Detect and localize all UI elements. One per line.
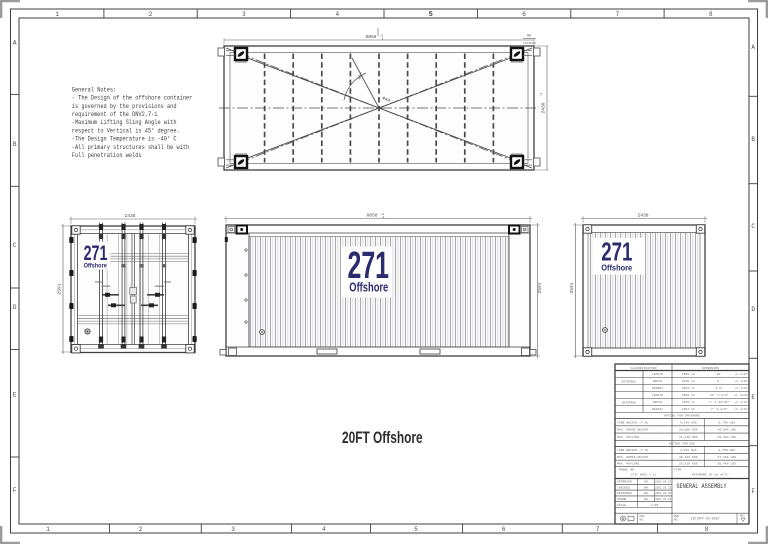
svg-text:3: 3 [242, 11, 246, 18]
svg-text:2438: 2438 [637, 213, 648, 219]
svg-text:8: 8 [709, 11, 713, 18]
svg-text:C: C [751, 223, 755, 230]
svg-text:F: F [13, 487, 17, 494]
svg-text:2591 ±2: 2591 ±2 [682, 386, 695, 390]
svg-text:+0 -1/16": +0 -1/16" [735, 380, 749, 383]
svg-text:DIMENSION: DIMENSION [702, 366, 719, 370]
svg-text:15,130 KGS: 15,130 KGS [679, 435, 698, 439]
svg-text:APPROVED: APPROVED [617, 480, 632, 484]
svg-text:2438: 2438 [124, 213, 135, 219]
svg-text:WIDTH: WIDTH [653, 400, 662, 404]
svg-text:8': 8' [717, 379, 721, 383]
svg-text:271: 271 [84, 241, 108, 264]
svg-text:C: C [13, 242, 17, 249]
svg-text:1/35: 1/35 [651, 503, 659, 507]
svg-text:2438: 2438 [541, 102, 547, 113]
svg-text:60: 60 [527, 35, 531, 39]
svg-text:2: 2 [139, 526, 143, 533]
svg-text:TYPE: TYPE [674, 468, 682, 472]
svg-text:2021.03.25: 2021.03.25 [655, 498, 672, 501]
svg-text:- The Design of the offshore c: - The Design of the offshore container [72, 94, 193, 102]
svg-text:LENGTH: LENGTH [652, 372, 663, 376]
svg-text:7: 7 [616, 11, 620, 18]
svg-text:Full penetration welds: Full penetration welds [72, 151, 142, 159]
svg-text:Offshore: Offshore [349, 281, 388, 295]
svg-text:D: D [13, 304, 17, 311]
svg-text:(CSC DNV2.7-1): (CSC DNV2.7-1) [631, 473, 657, 477]
svg-text:TARE WEIGHT (T.W): TARE WEIGHT (T.W) [617, 420, 649, 424]
svg-text:+0 -3/16": +0 -3/16" [735, 373, 749, 376]
svg-text:respect to Vertical is 45° deg: respect to Vertical is 45° degree. [72, 127, 180, 135]
svg-text:HEIGHT: HEIGHT [652, 407, 663, 411]
svg-text:58,464 LBS: 58,464 LBS [717, 462, 736, 466]
svg-text:WH: WH [644, 480, 648, 484]
svg-text:CHECKED: CHECKED [617, 485, 630, 489]
svg-text:is governed by the provisions: is governed by the provisions and [72, 102, 177, 110]
svg-text:6: 6 [502, 526, 506, 533]
svg-text:1: 1 [55, 11, 59, 18]
svg-text:7' 6-3/8": 7' 6-3/8" [711, 407, 728, 411]
svg-text:E: E [751, 394, 755, 401]
svg-text:CLASSIFICATION: CLASSIFICATION [631, 366, 657, 370]
svg-text:WH: WH [644, 497, 648, 501]
svg-text:8'6": 8'6" [716, 386, 724, 390]
svg-text:RATING FOR USE: RATING FOR USE [669, 442, 695, 446]
svg-text:8: 8 [705, 526, 709, 533]
svg-text:2021.03.25: 2021.03.25 [655, 492, 672, 495]
svg-text:-The Design Temperature is -40: -The Design Temperature is -40° C [72, 135, 177, 143]
svg-text:6058: 6058 [366, 213, 377, 219]
svg-text:EXTERNAL: EXTERNAL [622, 380, 637, 384]
svg-text:3: 3 [231, 526, 235, 533]
svg-text:30,480 KGS: 30,480 KGS [679, 455, 698, 459]
svg-text:2591: 2591 [537, 282, 543, 293]
svg-text:7' 7-23/32": 7' 7-23/32" [709, 400, 730, 404]
svg-text:20': 20' [716, 372, 722, 376]
svg-text:+0 -1/16": +0 -1/16" [735, 408, 749, 411]
svg-text:5: 5 [429, 11, 433, 19]
svg-text:2591: 2591 [57, 283, 63, 294]
svg-text:8,750 LBS: 8,750 LBS [718, 420, 735, 424]
svg-text:NO.: NO. [674, 519, 679, 522]
svg-text:25,610 KGS: 25,610 KGS [679, 462, 698, 466]
svg-text:7: 7 [596, 526, 600, 533]
svg-text:4: 4 [322, 526, 326, 533]
svg-text:+0 -13/64": +0 -13/64" [734, 394, 750, 397]
svg-text:General Notes:: General Notes: [72, 86, 116, 94]
svg-text:20FT Offshore: 20FT Offshore [342, 429, 423, 448]
svg-text:F: F [751, 488, 755, 495]
svg-text:GENERAL ASSEMBLY: GENERAL ASSEMBLY [677, 483, 727, 491]
svg-text:44,094 LBS: 44,094 LBS [717, 428, 736, 432]
svg-text:67,196 LBS: 67,196 LBS [717, 455, 736, 459]
svg-text:33,360 LBS: 33,360 LBS [717, 435, 736, 439]
svg-text:requirement of the DNV2.7-1: requirement of the DNV2.7-1 [72, 110, 158, 118]
svg-text:A: A [751, 44, 755, 51]
svg-text:MAX. GROSS WEIGHT: MAX. GROSS WEIGHT [617, 428, 649, 432]
svg-text:MODEL NO: MODEL NO [619, 468, 634, 472]
svg-text:B: B [751, 136, 755, 143]
svg-text:2591: 2591 [569, 282, 575, 293]
svg-text:MAX. GROSS WEIGHT: MAX. GROSS WEIGHT [617, 455, 649, 459]
svg-text:DESIGNED: DESIGNED [617, 491, 632, 495]
svg-text:5: 5 [414, 526, 418, 533]
svg-text:+0 -1/16": +0 -1/16" [735, 387, 749, 390]
svg-text:WH: WH [644, 491, 648, 495]
svg-text:REV.: REV. [740, 515, 746, 518]
svg-text:2330 ±2: 2330 ±2 [682, 400, 695, 404]
svg-text:MAX. PAYLOAD: MAX. PAYLOAD [617, 462, 639, 466]
svg-text:-Maximum Lifting Sling Angle w: -Maximum Lifting Sling Angle with [72, 119, 177, 127]
svg-text:INTERNAL: INTERNAL [622, 401, 637, 405]
svg-text:RATING FOR OFFSHORE: RATING FOR OFFSHORE [664, 414, 699, 418]
svg-text:OFFSHORE 20'x8'x8'6": OFFSHORE 20'x8'x8'6" [692, 473, 729, 477]
svg-text:Offshore: Offshore [601, 263, 633, 272]
svg-text:6058: 6058 [365, 34, 376, 40]
svg-text:19' 4-3/8": 19' 4-3/8" [710, 393, 729, 397]
svg-text:(SC)OFF-02-0010: (SC)OFF-02-0010 [691, 517, 720, 521]
svg-text:A: A [13, 40, 17, 47]
svg-text:8,750 LBS: 8,750 LBS [718, 448, 735, 452]
svg-text:2021.03.25: 2021.03.25 [655, 481, 672, 484]
svg-text:SCALE: SCALE [617, 503, 626, 507]
svg-text:NO.: NO. [640, 519, 645, 522]
svg-text:2397 ±2: 2397 ±2 [682, 407, 695, 411]
svg-text:-2: -2 [380, 37, 384, 40]
svg-text:20,000 KGS: 20,000 KGS [679, 428, 698, 432]
svg-text:6058 ±2: 6058 ±2 [682, 372, 695, 376]
svg-text:+0 -1/16": +0 -1/16" [735, 401, 749, 404]
svg-text:D: D [751, 306, 755, 313]
svg-text:Offshore: Offshore [84, 263, 108, 269]
svg-text:TARE WEIGHT (T.W): TARE WEIGHT (T.W) [617, 448, 649, 452]
svg-text:4,870 KGS: 4,870 KGS [680, 448, 697, 452]
svg-text:B: B [13, 141, 17, 148]
svg-text:HEIGHT: HEIGHT [652, 386, 663, 390]
svg-text:2: 2 [149, 11, 153, 18]
svg-text:DRAWN: DRAWN [617, 497, 626, 501]
svg-text:2021.03.25: 2021.03.25 [655, 486, 672, 489]
svg-text:1: 1 [46, 526, 50, 533]
svg-text:WH: WH [644, 485, 648, 489]
svg-text:5902 ±2: 5902 ±2 [682, 393, 695, 397]
svg-text:6: 6 [522, 11, 526, 18]
svg-text:-2: -2 [381, 216, 385, 219]
svg-text:-All primary structures shall: -All primary structures shall be with [72, 143, 190, 151]
svg-text:4,870 KGS: 4,870 KGS [680, 420, 697, 424]
svg-text:271: 271 [601, 237, 632, 267]
svg-text:MAX. PAYLOAD: MAX. PAYLOAD [617, 435, 639, 439]
svg-text:LENGTH: LENGTH [652, 393, 663, 397]
svg-text:+2: +2 [540, 92, 543, 96]
svg-text:E: E [13, 392, 17, 399]
svg-text:2438 ±2: 2438 ±2 [682, 379, 695, 383]
svg-text:WIDTH: WIDTH [653, 379, 662, 383]
svg-text:4: 4 [335, 11, 339, 18]
